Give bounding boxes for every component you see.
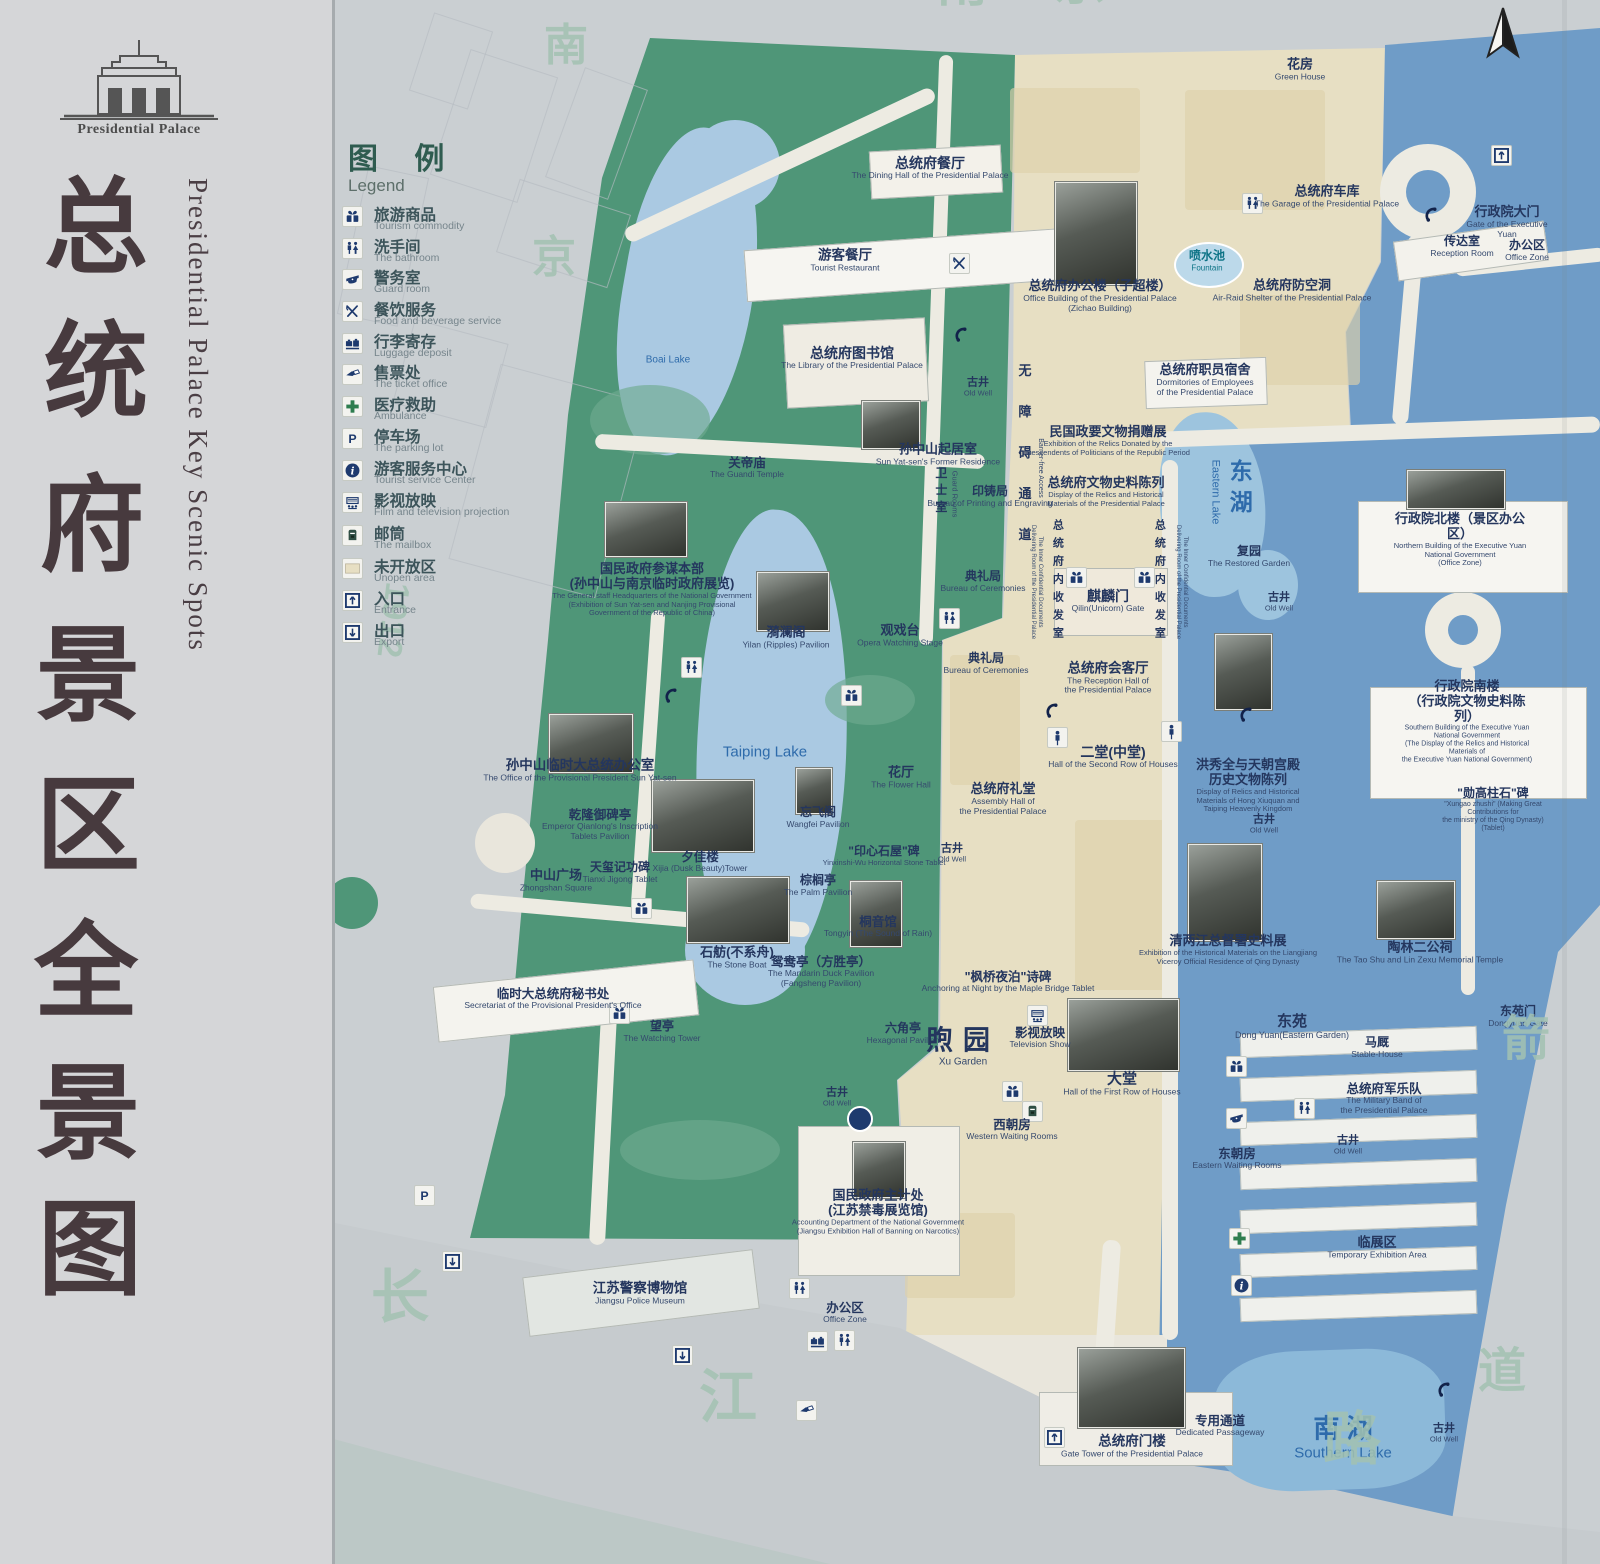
- restaurant-icon: [342, 301, 363, 322]
- legend-item-en: The parking lot: [374, 442, 443, 454]
- exit-icon: [342, 622, 363, 643]
- info-icon: i: [342, 460, 363, 481]
- sign-title-char: 府: [40, 441, 144, 592]
- street-name-char: 箭: [1502, 1016, 1550, 1064]
- entrance-icon: [342, 590, 363, 611]
- swatch-icon: [342, 558, 363, 579]
- legend-item-exit: 出口Export: [342, 621, 542, 653]
- luggage-icon: [342, 333, 363, 354]
- street-name-char: 道: [1478, 1348, 1526, 1396]
- legend-item-projector: 影视放映Film and television projection: [342, 491, 542, 523]
- gift-icon: [342, 206, 363, 227]
- sign-title-char: 全: [34, 887, 138, 1038]
- legend-item-en: The bathroom: [374, 252, 439, 264]
- logo-caption: Presidential Palace: [60, 118, 218, 138]
- legend-item-en: The ticket office: [374, 378, 447, 390]
- street-name-char: 长: [371, 1269, 429, 1327]
- sign-left-panel: Presidential Palace 总统府景区全景图 Presidentia…: [0, 0, 335, 1564]
- sign-title-char: 景: [36, 591, 140, 742]
- presidential-palace-logo-icon: [62, 38, 216, 120]
- legend-title-zh: 图 例: [348, 134, 458, 178]
- legend-item-en: Tourism commodity: [374, 220, 464, 232]
- svg-text:P: P: [348, 432, 356, 446]
- legend-item-en: The mailbox: [374, 539, 431, 551]
- legend-item-mailbox: 邮筒The mailbox: [342, 524, 542, 556]
- legend-item-medical: 医疗救助Ambulance: [342, 395, 542, 427]
- sign-title-char: 景: [36, 1029, 140, 1180]
- sign-title-char: 总: [44, 143, 148, 294]
- legend-item-gift: 旅游商品Tourism commodity: [342, 205, 542, 237]
- legend-item-en: Ambulance: [374, 410, 427, 422]
- sign-title-char: 统: [44, 287, 148, 438]
- sign-title-en: Presidential Palace Key Scenic Spots: [182, 178, 213, 998]
- ticket-icon: [342, 364, 363, 385]
- street-name-char: 江: [699, 1369, 757, 1427]
- legend-item-en: Food and beverage service: [374, 315, 501, 327]
- street-name-char: 路: [1323, 1411, 1381, 1469]
- legend-item-en: Export: [374, 636, 404, 648]
- legend-item-en: Film and television projection: [374, 506, 509, 518]
- legend-item-swatch: 未开放区Unopen area: [342, 557, 542, 589]
- sign-title-char: 区: [36, 741, 140, 892]
- legend-item-entrance: 入口Entrance: [342, 589, 542, 621]
- street-name-char: 南: [936, 0, 988, 10]
- legend-item-info: i游客服务中心Tourist service Center: [342, 459, 542, 491]
- legend-item-en: Luggage deposit: [374, 347, 452, 359]
- guard-icon: [342, 269, 363, 290]
- street-name-char: 南: [544, 24, 588, 68]
- svg-text:i: i: [351, 466, 355, 477]
- legend-item-en: Entrance: [374, 604, 416, 616]
- mailbox-icon: [342, 525, 363, 546]
- legend-item-restaurant: 餐饮服务Food and beverage service: [342, 300, 542, 332]
- north-arrow-icon: [1478, 6, 1528, 62]
- projector-icon: [342, 492, 363, 513]
- legend-item-luggage: 行李寄存Luggage deposit: [342, 332, 542, 364]
- map-sign: iP 总统府餐厅The Dining Hall of the President…: [0, 0, 1600, 1564]
- legend-item-guard: 警务室Guard room: [342, 268, 542, 300]
- legend-item-en: Guard room: [374, 283, 430, 295]
- toilet-icon: [342, 238, 363, 259]
- legend-item-toilet: 洗手间The bathroom: [342, 237, 542, 269]
- parking-icon: P: [342, 428, 363, 449]
- street-name-char: 京: [1054, 0, 1106, 8]
- legend-item-en: Unopen area: [374, 572, 435, 584]
- sign-title-char: 图: [38, 1165, 142, 1316]
- legend-title-en: Legend: [348, 176, 405, 196]
- legend-item-en: Tourist service Center: [374, 474, 476, 486]
- legend-item-parking: P停车场The parking lot: [342, 427, 542, 459]
- medical-icon: [342, 396, 363, 417]
- legend-item-ticket: 售票处The ticket office: [342, 363, 542, 395]
